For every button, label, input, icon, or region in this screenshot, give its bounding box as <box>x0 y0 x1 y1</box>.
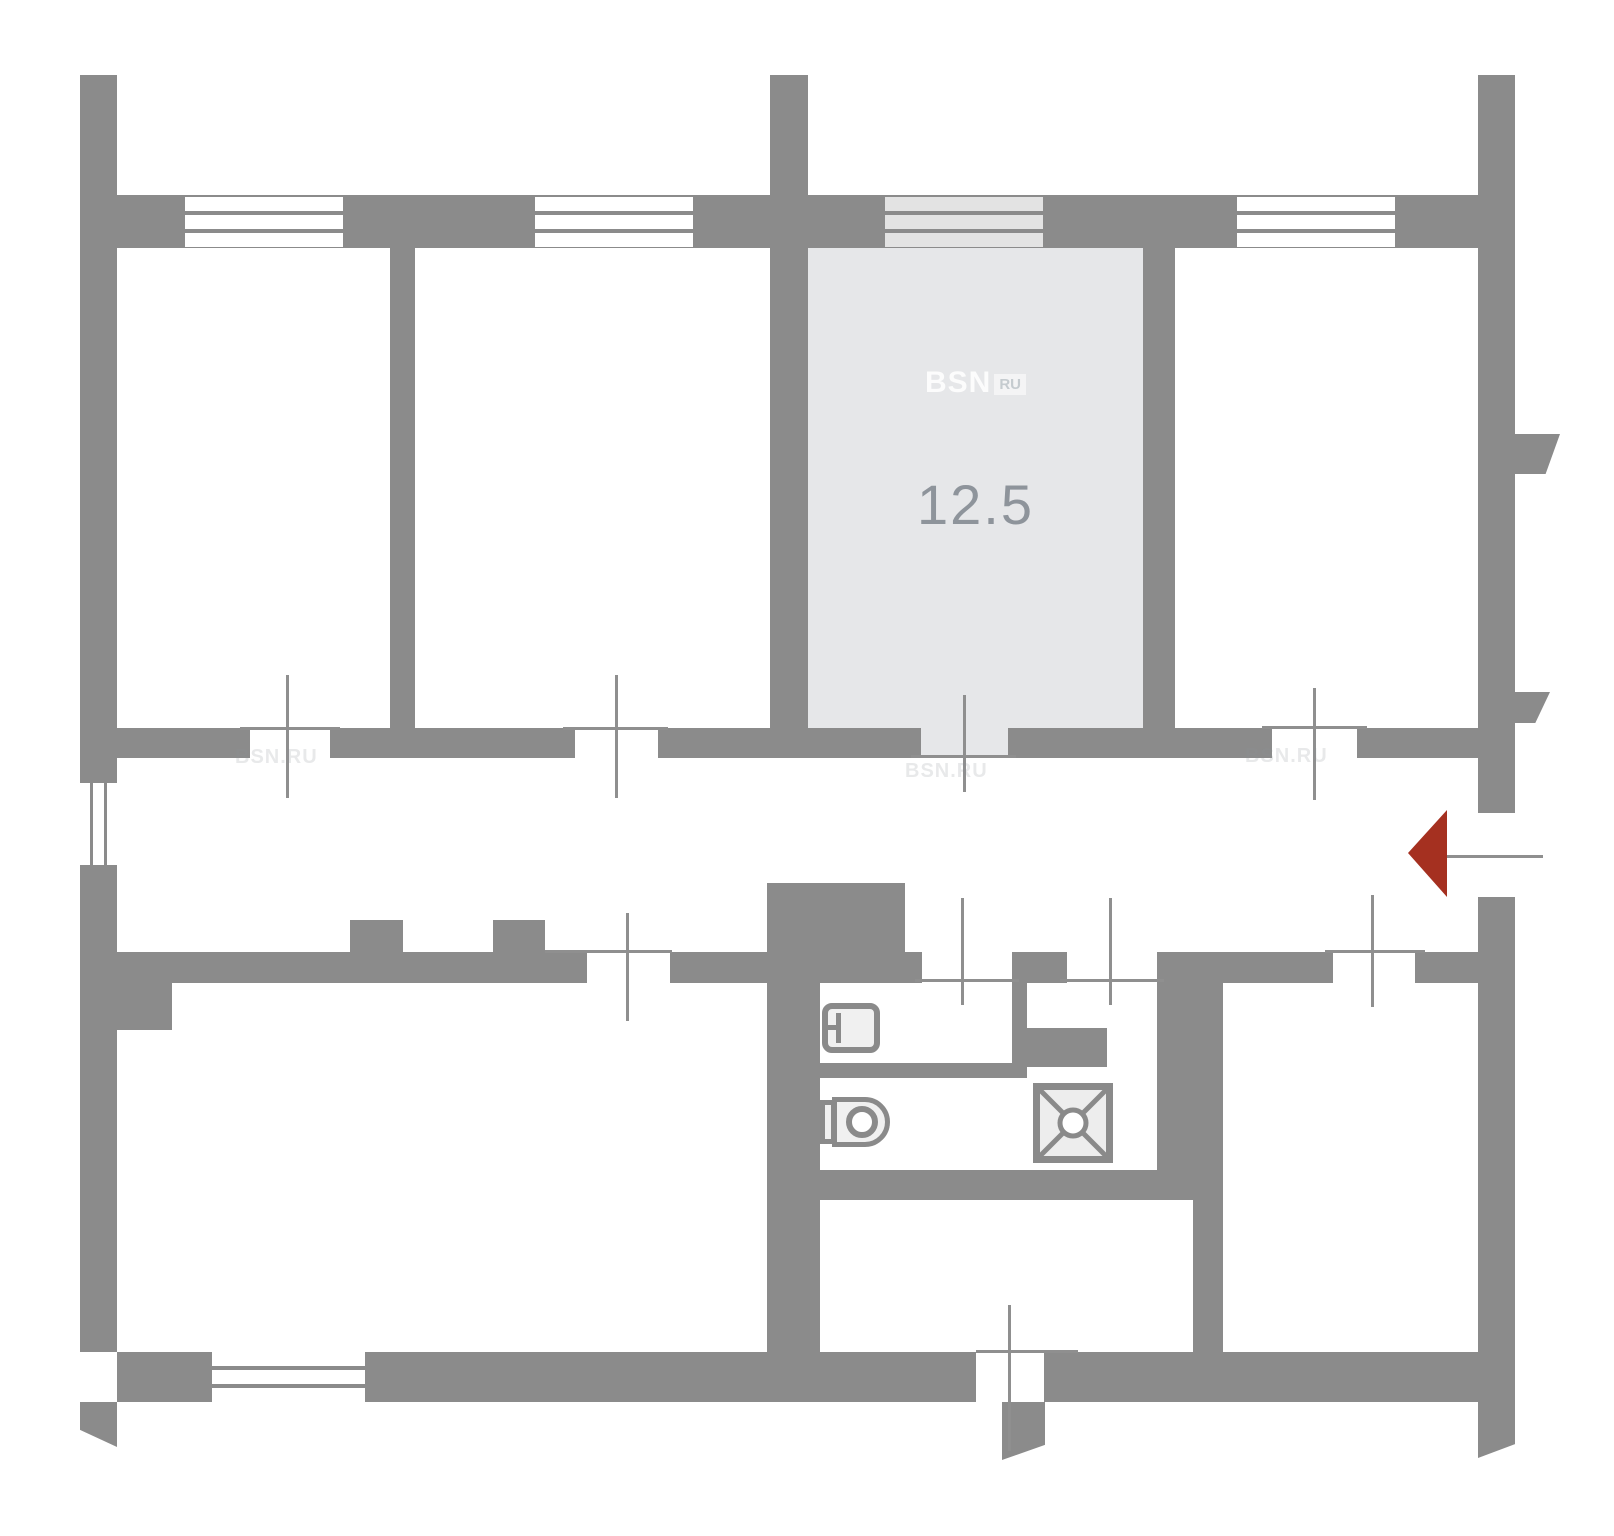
door-vestibule-mark <box>915 979 1019 982</box>
entrance-arrow-icon <box>1408 810 1447 897</box>
wall-wc-right <box>1157 983 1223 1170</box>
door-room-c-mark <box>1313 688 1316 800</box>
door-exterior-bottom-mark <box>976 1350 1078 1353</box>
door-exterior-bottom-mark <box>1008 1305 1011 1451</box>
floor-plan: BSNRU 12.5 <box>0 0 1614 1536</box>
wall-right-stub-top <box>1478 75 1515 195</box>
door-room-b-mark <box>615 675 618 798</box>
toilet-icon <box>846 1106 878 1138</box>
window-room-bottom-left <box>212 1352 365 1402</box>
door-room-c-mark <box>1262 726 1367 729</box>
wall-left-tip <box>80 1402 117 1447</box>
door-room-bottom-right-opening <box>1333 952 1415 983</box>
wall-kitchen-right <box>1193 1200 1223 1352</box>
wall-vestibule-bottom <box>820 1063 1015 1078</box>
wall-right-tip <box>1478 1400 1515 1458</box>
washing-machine-icon <box>822 1025 836 1030</box>
door-room-bottom-left-mark <box>626 913 629 1021</box>
wall-room-b-center <box>770 248 808 728</box>
door-room-center-mark <box>911 755 1016 758</box>
highlighted-room: BSNRU 12.5 <box>808 248 1143 728</box>
window-corridor-left <box>80 783 117 865</box>
shower-tray-icon <box>1033 1083 1113 1163</box>
wall-bump-right-2 <box>1515 692 1550 723</box>
wall-left-stub-top <box>80 75 117 195</box>
wall-duct-block <box>1027 1028 1107 1067</box>
door-entrance-mark <box>1447 855 1543 858</box>
watermark-suffix-badge: RU <box>994 374 1026 395</box>
door-room-bottom-left-mark <box>545 950 672 953</box>
door-vestibule-mark <box>961 898 964 1005</box>
door-wc-mark <box>1109 898 1112 1005</box>
door-room-bottom-right-mark <box>1325 950 1425 953</box>
wall-bath-left <box>767 983 820 1352</box>
window-room-a <box>185 197 343 247</box>
wall-room-a-b <box>390 248 415 728</box>
door-room-a-opening <box>250 728 330 758</box>
door-room-a-mark <box>240 727 340 730</box>
door-room-center-mark <box>963 695 966 792</box>
wall-room-corner-step <box>117 983 172 1030</box>
door-room-a-mark <box>286 675 289 798</box>
wall-bath-bottom <box>820 1170 1223 1200</box>
door-wc-mark <box>1060 979 1164 982</box>
shower-tray-icon <box>1040 1090 1106 1156</box>
room-area-label: 12.5 <box>808 472 1143 537</box>
wall-corridor-tab-1 <box>350 920 403 952</box>
wall-corridor-tab-2 <box>493 920 545 952</box>
washing-machine-icon <box>836 1013 841 1043</box>
watermark-brand-text: BSN <box>925 366 991 399</box>
window-room-center <box>885 197 1043 247</box>
door-room-b-mark <box>563 727 668 730</box>
watermark-tile: BSN.RU <box>905 760 988 783</box>
wall-corridor-bottom <box>117 952 1478 983</box>
watermark-logo: BSNRU <box>808 366 1143 400</box>
window-room-c <box>1237 197 1395 247</box>
wall-center-stub-top <box>770 75 808 195</box>
wall-bath-chunk <box>767 883 905 952</box>
window-room-b <box>535 197 693 247</box>
wall-bump-right-1 <box>1515 434 1560 474</box>
wall-right-upper <box>1478 248 1515 813</box>
wall-right-lower <box>1478 897 1515 1400</box>
wall-center-room-c <box>1143 248 1175 728</box>
